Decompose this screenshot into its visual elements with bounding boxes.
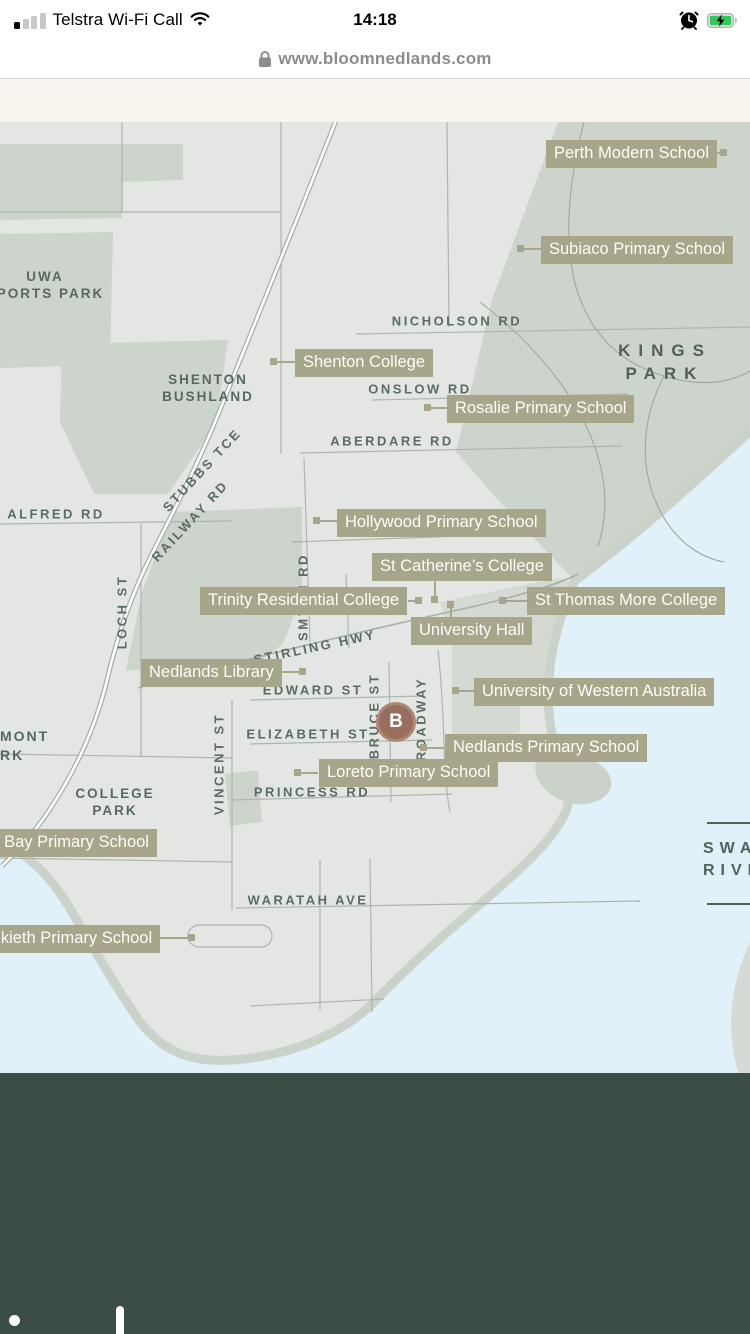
map-label-university-of-western-australia[interactable]: University of Western Australia [474,678,714,706]
status-bar: Telstra Wi-Fi Call 14:18 [0,0,750,40]
map-label-perth-modern-school[interactable]: Perth Modern School [546,140,717,168]
map-label-bay-primary-school[interactable]: r Bay Primary School [0,829,157,857]
status-right-group [679,0,738,40]
map-label-subiaco-primary-school[interactable]: Subiaco Primary School [541,236,733,264]
alarm-icon [679,10,699,30]
map-label-nedlands-library[interactable]: Nedlands Library [141,659,282,687]
map-label-trinity-residential-college[interactable]: Trinity Residential College [200,587,407,615]
map-label-st-thomas-more-college[interactable]: St Thomas More College [527,587,725,615]
page-header-strip [0,79,750,122]
footer-partial-glyph [116,1306,124,1334]
url-text: www.bloomnedlands.com [278,49,491,69]
map-label-hollywood-primary-school[interactable]: Hollywood Primary School [337,509,546,537]
map-label-nedlands-primary-school[interactable]: Nedlands Primary School [445,734,647,762]
clock-time: 14:18 [0,0,750,40]
map-label-dalkieth-primary-school[interactable]: alkieth Primary School [0,925,160,953]
browser-address-bar[interactable]: www.bloomnedlands.com [0,40,750,79]
map-label-shenton-college[interactable]: Shenton College [295,349,433,377]
map-label-loreto-primary-school[interactable]: Loreto Primary School [319,759,498,787]
map-label-rosalie-primary-school[interactable]: Rosalie Primary School [447,395,634,423]
footer-bullet-dot [9,1315,20,1326]
map-label-st-catherines-college[interactable]: St Catherine’s College [372,553,552,581]
page-footer [0,1073,750,1334]
map-label-university-hall[interactable]: University Hall [411,617,532,645]
battery-charging-icon [707,13,738,28]
lock-icon [258,50,272,68]
